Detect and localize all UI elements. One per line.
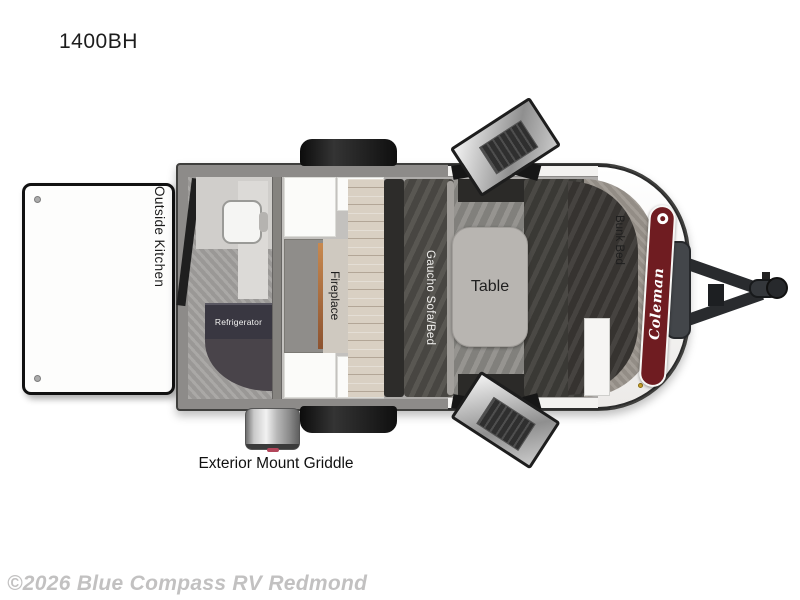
partition-wall bbox=[272, 177, 282, 399]
coleman-lantern-icon bbox=[656, 213, 668, 225]
wheel-top bbox=[300, 139, 397, 166]
fireplace-label: Fireplace bbox=[323, 244, 347, 348]
refrigerator: Refrigerator bbox=[205, 303, 272, 339]
screw-icon bbox=[34, 375, 41, 382]
faucet-icon bbox=[259, 212, 268, 232]
outside-kitchen-label: Outside Kitchen bbox=[152, 186, 167, 392]
griddle-label: Exterior Mount Griddle bbox=[186, 455, 366, 473]
table: Table bbox=[452, 227, 528, 347]
wheel-bottom bbox=[300, 406, 397, 433]
page-title: 1400BH bbox=[59, 30, 138, 54]
table-label: Table bbox=[471, 278, 509, 296]
refrigerator-label: Refrigerator bbox=[215, 317, 262, 327]
bunk-step bbox=[584, 318, 610, 396]
outside-kitchen-panel: Outside Kitchen bbox=[22, 183, 175, 395]
overhead-cabinet bbox=[284, 177, 336, 237]
wood-floor-aisle bbox=[348, 179, 384, 397]
griddle-knob-icon bbox=[267, 448, 279, 452]
step-tread bbox=[476, 397, 535, 451]
exterior-mount-griddle bbox=[245, 408, 300, 450]
screw-icon bbox=[34, 196, 41, 203]
sofa-backrest bbox=[384, 179, 404, 397]
marker-light-icon bbox=[638, 383, 643, 388]
sink bbox=[222, 200, 262, 244]
dealer-watermark: ©2026 Blue Compass RV Redmond bbox=[7, 572, 367, 596]
floorplan-page: 1400BH Outside Kitchen Refrigerator Fire… bbox=[0, 0, 800, 600]
sofa-label: Gaucho Sofa/Bed bbox=[420, 232, 440, 364]
bunk-bed-label: Bunk Bed bbox=[610, 203, 628, 277]
